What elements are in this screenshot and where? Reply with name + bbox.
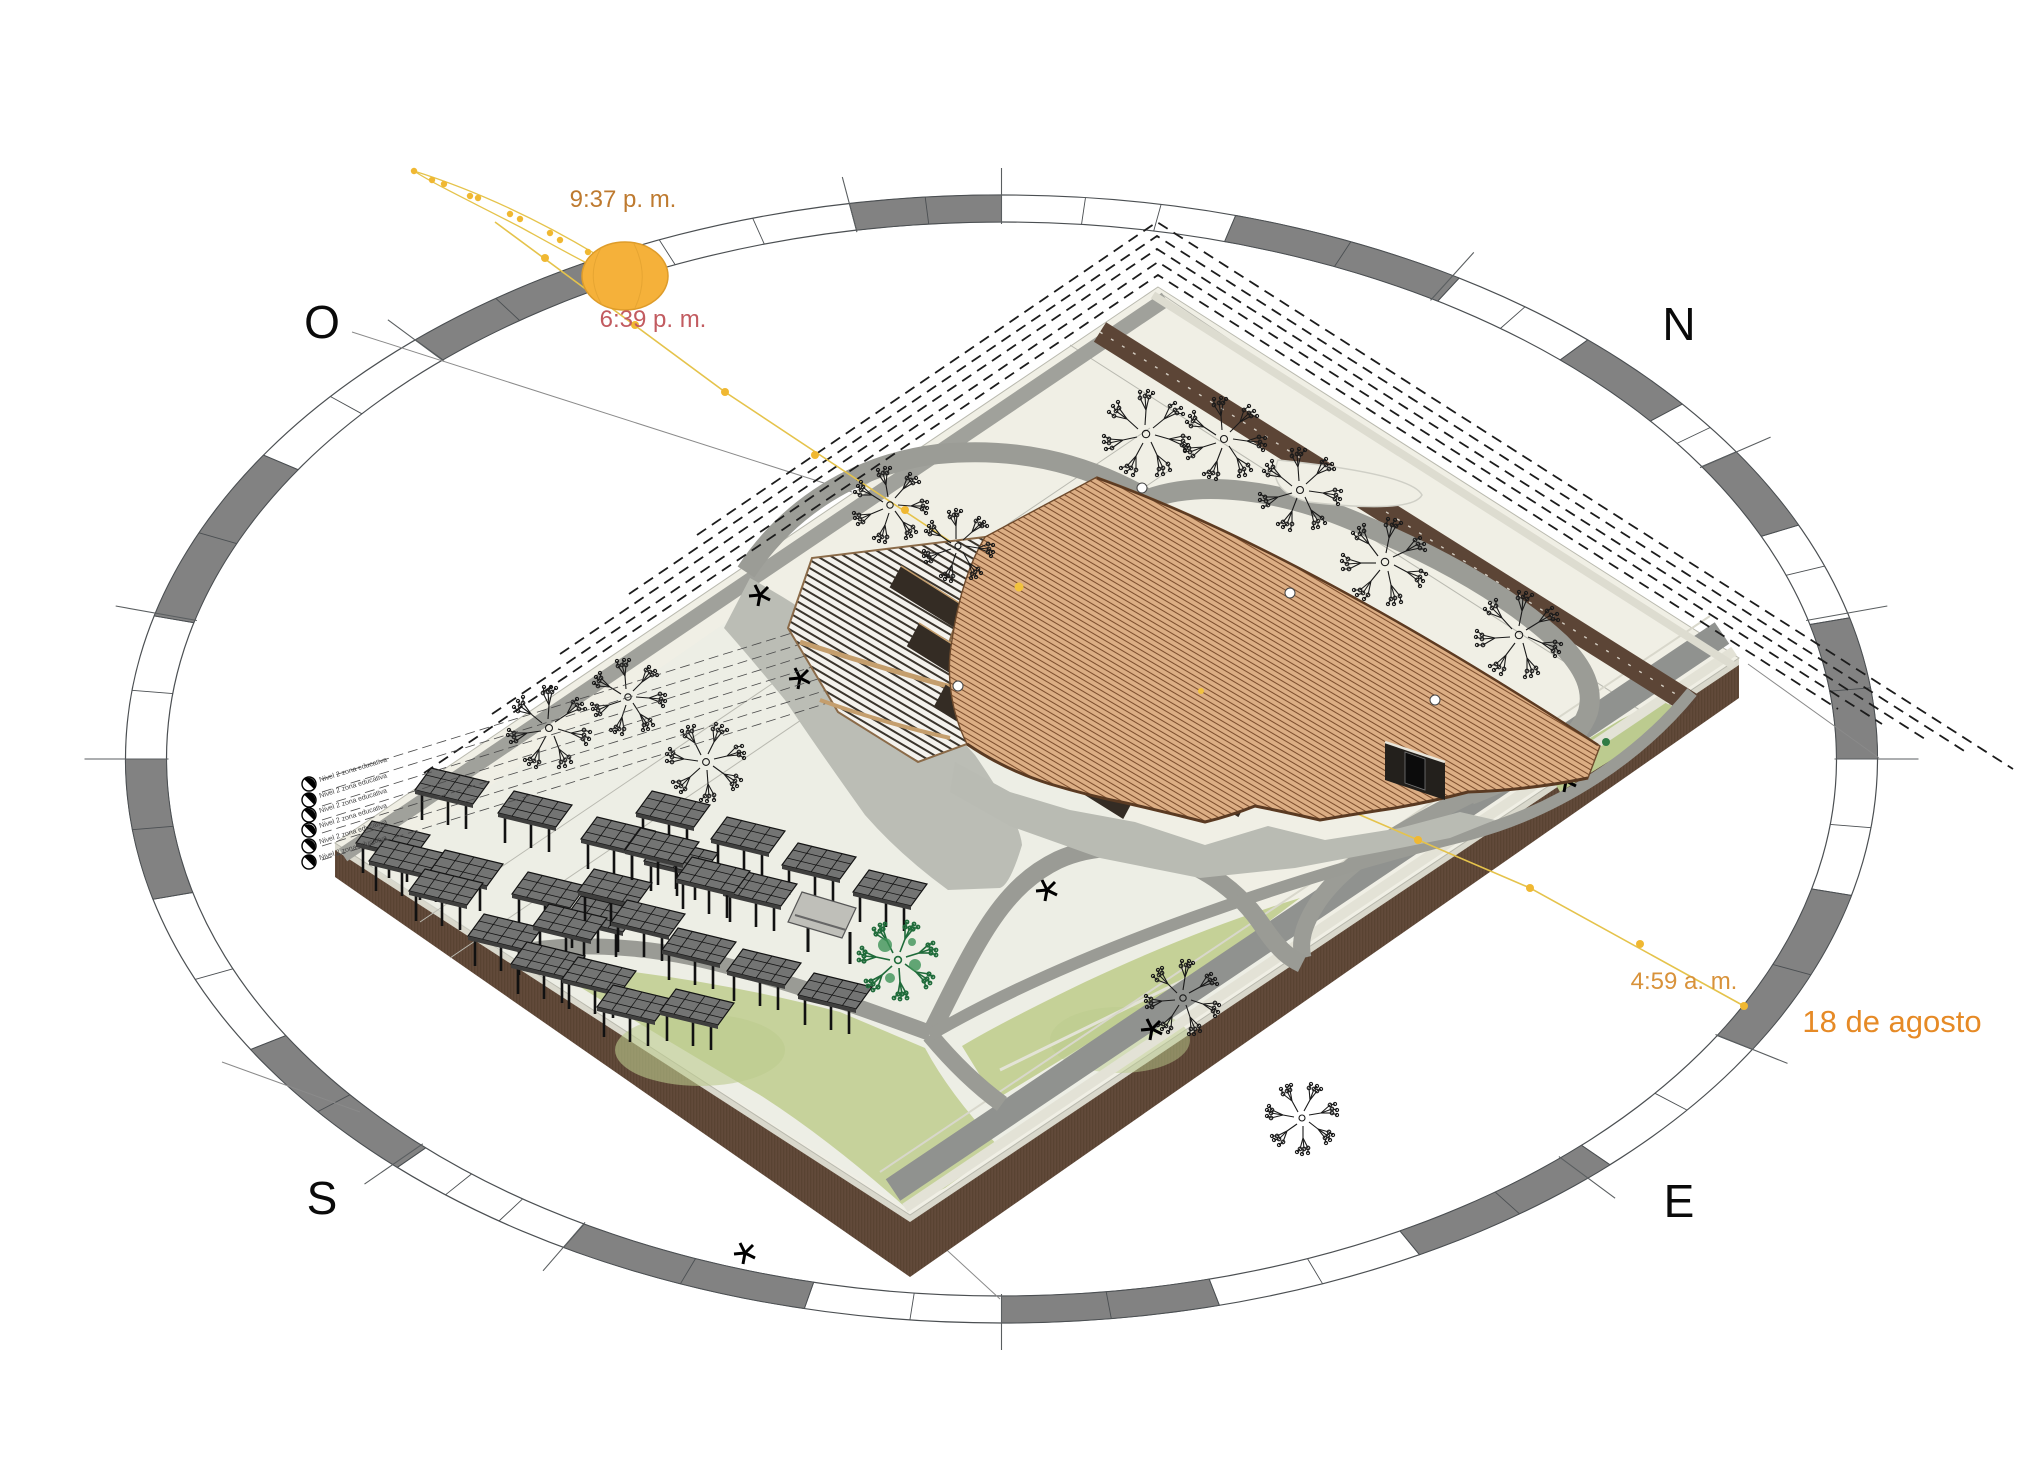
svg-text:18 de agosto: 18 de agosto <box>1802 1004 1981 1039</box>
svg-text:N: N <box>1662 298 1695 350</box>
svg-text:S: S <box>307 1172 338 1224</box>
svg-text:O: O <box>304 296 340 348</box>
svg-text:4:59 a. m.: 4:59 a. m. <box>1631 968 1738 995</box>
svg-text:E: E <box>1664 1175 1695 1227</box>
svg-text:9:37 p. m.: 9:37 p. m. <box>570 186 677 213</box>
svg-text:6:39 p. m.: 6:39 p. m. <box>600 306 707 333</box>
